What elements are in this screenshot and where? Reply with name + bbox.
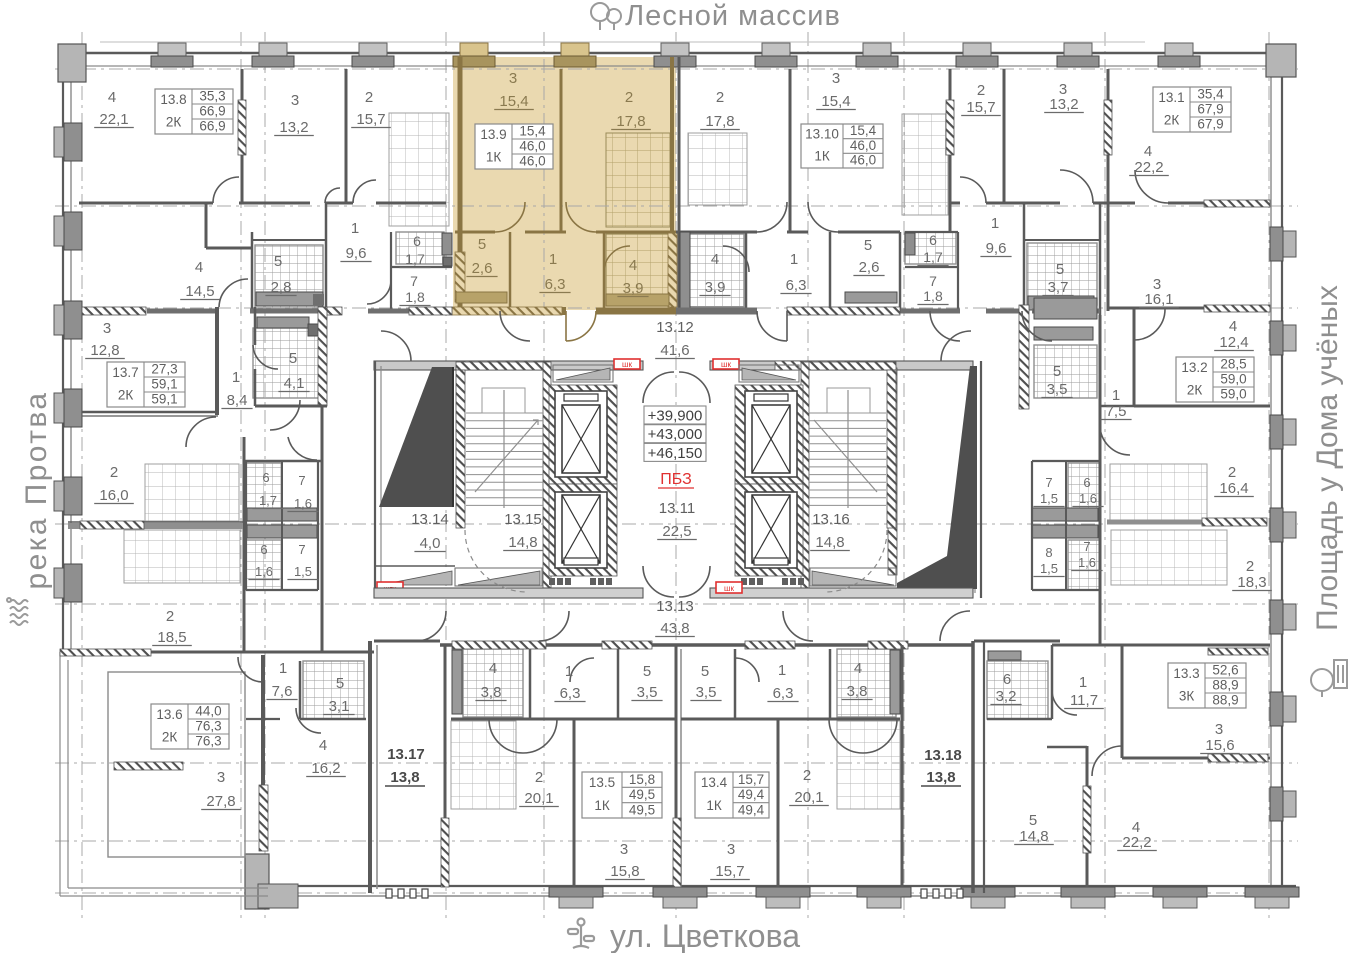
svg-text:7,5: 7,5 (1106, 403, 1127, 420)
svg-text:1: 1 (790, 251, 798, 268)
svg-text:11,7: 11,7 (1070, 692, 1098, 709)
svg-text:17,8: 17,8 (705, 113, 734, 130)
svg-text:88,9: 88,9 (1212, 693, 1238, 708)
svg-text:15,4: 15,4 (821, 93, 850, 110)
svg-text:3,5: 3,5 (637, 684, 658, 701)
svg-text:+46,150: +46,150 (648, 445, 703, 462)
svg-text:4: 4 (108, 89, 116, 106)
svg-text:12,4: 12,4 (1219, 334, 1248, 351)
svg-text:67,9: 67,9 (1197, 117, 1223, 132)
svg-text:15,7: 15,7 (738, 772, 764, 787)
svg-text:52,6: 52,6 (1212, 663, 1238, 678)
svg-text:13.1: 13.1 (1158, 90, 1184, 105)
svg-text:5: 5 (274, 253, 282, 270)
svg-text:1,6: 1,6 (294, 496, 312, 511)
svg-text:2: 2 (716, 89, 724, 106)
svg-text:49,5: 49,5 (629, 803, 655, 818)
svg-text:46,0: 46,0 (850, 153, 876, 168)
svg-text:14,8: 14,8 (815, 534, 844, 551)
svg-text:3,7: 3,7 (1048, 279, 1069, 296)
svg-text:5: 5 (1056, 261, 1064, 278)
svg-text:5: 5 (336, 675, 344, 692)
svg-text:2К: 2К (1164, 112, 1180, 127)
svg-text:13.18: 13.18 (924, 747, 962, 764)
svg-text:12,8: 12,8 (90, 342, 119, 359)
svg-text:46,0: 46,0 (519, 154, 545, 169)
svg-text:1: 1 (279, 660, 287, 677)
svg-text:2: 2 (977, 82, 985, 99)
svg-text:13.16: 13.16 (812, 511, 850, 528)
svg-text:13.5: 13.5 (589, 775, 615, 790)
svg-text:1: 1 (549, 251, 557, 268)
svg-text:59,0: 59,0 (1220, 387, 1246, 402)
svg-text:3,9: 3,9 (623, 280, 644, 297)
svg-text:ПБЗ: ПБЗ (660, 471, 691, 488)
svg-text:2: 2 (110, 464, 118, 481)
svg-text:1,5: 1,5 (294, 564, 312, 579)
svg-text:13.15: 13.15 (504, 511, 542, 528)
svg-text:66,9: 66,9 (199, 104, 225, 119)
svg-text:59,1: 59,1 (151, 377, 177, 392)
svg-text:3,5: 3,5 (696, 684, 717, 701)
svg-text:66,9: 66,9 (199, 119, 225, 134)
svg-text:13.3: 13.3 (1173, 666, 1199, 681)
svg-text:13.11: 13.11 (659, 500, 695, 517)
svg-text:4: 4 (319, 737, 327, 754)
svg-text:88,9: 88,9 (1212, 678, 1238, 693)
svg-text:5: 5 (1029, 812, 1037, 829)
svg-text:2К: 2К (162, 729, 178, 744)
svg-text:3,9: 3,9 (705, 279, 726, 296)
svg-text:1,6: 1,6 (1079, 491, 1097, 506)
svg-text:9,6: 9,6 (346, 245, 367, 262)
svg-text:река Протва: река Протва (20, 391, 53, 590)
svg-text:2,6: 2,6 (859, 259, 880, 276)
svg-text:8: 8 (1045, 545, 1052, 560)
svg-text:1,6: 1,6 (1078, 555, 1096, 570)
svg-text:5: 5 (643, 663, 651, 680)
svg-text:49,4: 49,4 (738, 787, 765, 802)
svg-text:1К: 1К (486, 149, 502, 164)
svg-text:1,5: 1,5 (1040, 561, 1058, 576)
svg-text:27,8: 27,8 (206, 793, 235, 810)
svg-text:2: 2 (365, 89, 373, 106)
svg-text:6,3: 6,3 (560, 685, 581, 702)
svg-text:35,4: 35,4 (1197, 87, 1224, 102)
svg-text:22,2: 22,2 (1134, 159, 1163, 176)
svg-text:1К: 1К (814, 149, 830, 164)
svg-text:6,3: 6,3 (786, 277, 807, 294)
svg-text:4: 4 (711, 251, 719, 268)
svg-text:1,8: 1,8 (405, 289, 425, 305)
svg-text:14,8: 14,8 (1019, 828, 1048, 845)
svg-text:7: 7 (929, 273, 937, 289)
svg-text:1,7: 1,7 (923, 249, 943, 265)
svg-text:1,5: 1,5 (1040, 491, 1058, 506)
svg-text:2К: 2К (1187, 382, 1203, 397)
svg-text:5: 5 (701, 663, 709, 680)
svg-text:14,8: 14,8 (508, 534, 537, 551)
svg-text:3: 3 (832, 70, 840, 87)
svg-text:22,2: 22,2 (1122, 834, 1151, 851)
svg-text:2: 2 (166, 608, 174, 625)
svg-text:1: 1 (1112, 387, 1120, 404)
svg-text:13,2: 13,2 (279, 119, 308, 136)
svg-text:4: 4 (489, 660, 497, 677)
svg-text:3: 3 (291, 92, 299, 109)
svg-text:2К: 2К (118, 387, 134, 402)
svg-text:5: 5 (864, 237, 872, 254)
svg-text:49,4: 49,4 (738, 803, 765, 818)
svg-text:13.7: 13.7 (112, 365, 138, 380)
svg-text:1,7: 1,7 (405, 251, 425, 267)
svg-text:16,0: 16,0 (99, 487, 128, 504)
svg-text:35,3: 35,3 (199, 89, 225, 104)
svg-text:шк: шк (724, 584, 734, 593)
svg-text:2,6: 2,6 (472, 260, 493, 277)
svg-text:1,6: 1,6 (255, 564, 273, 579)
svg-text:13.13: 13.13 (656, 598, 694, 615)
svg-text:8,4: 8,4 (227, 392, 248, 409)
svg-text:1К: 1К (594, 798, 610, 813)
svg-text:3: 3 (620, 841, 628, 858)
svg-text:13.8: 13.8 (160, 92, 186, 107)
svg-text:13.14: 13.14 (411, 511, 449, 528)
svg-text:3,8: 3,8 (481, 684, 502, 701)
svg-text:2К: 2К (166, 114, 182, 129)
svg-text:13.17: 13.17 (387, 746, 425, 763)
svg-text:2: 2 (803, 767, 811, 784)
svg-text:6: 6 (413, 233, 421, 249)
svg-text:4: 4 (195, 259, 203, 276)
svg-text:16,1: 16,1 (1144, 291, 1173, 308)
svg-text:6: 6 (1003, 671, 1011, 688)
svg-text:13.10: 13.10 (805, 127, 839, 142)
svg-text:13.12: 13.12 (656, 319, 694, 336)
svg-text:13,8: 13,8 (390, 769, 419, 786)
svg-text:15,8: 15,8 (610, 863, 639, 880)
svg-text:20,1: 20,1 (524, 790, 553, 807)
svg-text:44,0: 44,0 (195, 704, 221, 719)
svg-text:13.4: 13.4 (701, 775, 728, 790)
svg-text:1: 1 (565, 663, 573, 680)
svg-text:1,8: 1,8 (923, 288, 943, 304)
svg-text:46,0: 46,0 (850, 138, 876, 153)
svg-text:49,5: 49,5 (629, 787, 655, 802)
svg-text:ул. Цветкова: ул. Цветкова (610, 918, 800, 953)
svg-text:1К: 1К (706, 798, 722, 813)
svg-text:46,0: 46,0 (519, 139, 545, 154)
svg-text:5: 5 (1053, 363, 1061, 380)
svg-text:13,2: 13,2 (1049, 96, 1078, 113)
svg-text:7: 7 (298, 473, 305, 488)
svg-text:1: 1 (991, 215, 999, 232)
svg-text:22,5: 22,5 (662, 523, 691, 540)
svg-text:шк: шк (622, 360, 632, 369)
svg-text:15,6: 15,6 (1205, 737, 1234, 754)
svg-text:18,5: 18,5 (157, 629, 186, 646)
svg-text:1: 1 (232, 369, 240, 386)
svg-text:6,3: 6,3 (545, 276, 566, 293)
svg-text:3: 3 (509, 70, 517, 87)
svg-text:1: 1 (1079, 674, 1087, 691)
svg-text:13,8: 13,8 (926, 769, 955, 786)
svg-text:15,7: 15,7 (356, 111, 385, 128)
svg-text:22,1: 22,1 (99, 111, 128, 128)
svg-text:3,2: 3,2 (996, 688, 1017, 705)
svg-text:4: 4 (1229, 318, 1237, 335)
svg-text:15,7: 15,7 (715, 863, 744, 880)
svg-text:6,3: 6,3 (773, 685, 794, 702)
svg-text:6: 6 (929, 232, 937, 248)
svg-text:20,1: 20,1 (794, 789, 823, 806)
svg-text:2: 2 (535, 769, 543, 786)
svg-text:7: 7 (1083, 539, 1090, 554)
svg-text:3: 3 (1215, 721, 1223, 738)
svg-text:7: 7 (298, 542, 305, 557)
svg-text:1: 1 (778, 662, 786, 679)
svg-text:6: 6 (1083, 475, 1090, 490)
svg-text:2: 2 (625, 89, 633, 106)
svg-text:3К: 3К (1179, 688, 1195, 703)
svg-text:76,3: 76,3 (195, 719, 221, 734)
svg-text:4,0: 4,0 (420, 535, 441, 552)
svg-text:76,3: 76,3 (195, 734, 221, 749)
svg-text:13.6: 13.6 (156, 707, 182, 722)
svg-text:6: 6 (262, 470, 269, 485)
svg-text:41,6: 41,6 (660, 342, 689, 359)
svg-text:4: 4 (629, 257, 637, 274)
svg-text:шк: шк (721, 360, 731, 369)
svg-text:3: 3 (727, 841, 735, 858)
svg-text:2: 2 (1228, 464, 1236, 481)
svg-text:16,4: 16,4 (1219, 480, 1248, 497)
svg-text:2,8: 2,8 (271, 279, 292, 296)
svg-text:7: 7 (410, 273, 418, 289)
svg-text:27,3: 27,3 (151, 362, 177, 377)
svg-text:15,4: 15,4 (499, 93, 528, 110)
svg-text:Лесной массив: Лесной массив (625, 0, 841, 32)
svg-text:67,9: 67,9 (1197, 102, 1223, 117)
svg-text:16,2: 16,2 (311, 760, 340, 777)
svg-text:43,8: 43,8 (660, 620, 689, 637)
svg-text:15,4: 15,4 (519, 124, 546, 139)
svg-text:7,6: 7,6 (272, 683, 293, 700)
svg-text:1,7: 1,7 (259, 493, 277, 508)
svg-text:3,1: 3,1 (329, 698, 350, 715)
svg-text:28,5: 28,5 (1220, 357, 1246, 372)
svg-text:14,5: 14,5 (185, 283, 214, 300)
svg-text:18,3: 18,3 (1237, 574, 1266, 591)
svg-text:2: 2 (1246, 558, 1254, 575)
svg-text:59,1: 59,1 (151, 392, 177, 407)
svg-text:5: 5 (478, 236, 486, 253)
svg-text:5: 5 (289, 350, 297, 367)
svg-text:Площадь у Дома учёных: Площадь у Дома учёных (1311, 285, 1344, 631)
svg-text:59,0: 59,0 (1220, 372, 1246, 387)
svg-text:3: 3 (217, 769, 225, 786)
svg-text:13.2: 13.2 (1181, 360, 1207, 375)
svg-text:15,8: 15,8 (629, 772, 655, 787)
svg-text:3,5: 3,5 (1047, 381, 1068, 398)
svg-text:6: 6 (260, 542, 267, 557)
svg-text:3: 3 (103, 320, 111, 337)
svg-text:+43,000: +43,000 (648, 426, 703, 443)
svg-text:15,4: 15,4 (850, 123, 877, 138)
svg-text:17,8: 17,8 (616, 113, 645, 130)
svg-text:9,6: 9,6 (986, 240, 1007, 257)
svg-text:1: 1 (351, 220, 359, 237)
svg-text:+39,900: +39,900 (648, 408, 703, 425)
svg-text:7: 7 (1045, 475, 1052, 490)
svg-text:3,8: 3,8 (847, 683, 868, 700)
svg-text:4: 4 (854, 660, 862, 677)
svg-text:4: 4 (1144, 143, 1152, 160)
svg-text:15,7: 15,7 (966, 99, 995, 116)
svg-text:4,1: 4,1 (284, 375, 305, 392)
svg-text:13.9: 13.9 (480, 127, 506, 142)
